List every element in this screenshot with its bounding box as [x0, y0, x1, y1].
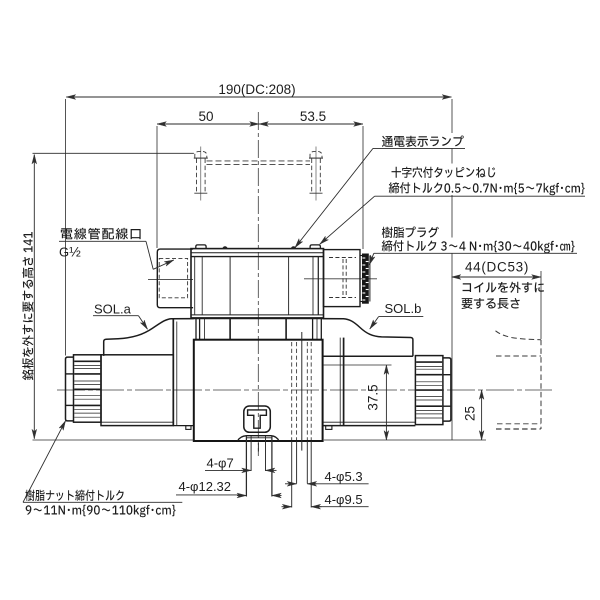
svg-text:4-φ7: 4-φ7: [207, 456, 234, 471]
svg-text:190(DC:208): 190(DC:208): [218, 82, 295, 97]
svg-text:G½: G½: [59, 244, 81, 260]
svg-text:37.5: 37.5: [366, 384, 381, 410]
svg-text:SOL.b: SOL.b: [385, 301, 422, 316]
svg-text:SOL.a: SOL.a: [94, 302, 132, 317]
svg-text:4-φ12.32: 4-φ12.32: [179, 479, 232, 494]
svg-text:4-φ9.5: 4-φ9.5: [325, 492, 363, 507]
svg-text:25: 25: [463, 406, 478, 421]
svg-text:53.5: 53.5: [300, 109, 326, 124]
svg-text:44(DC53): 44(DC53): [465, 260, 529, 275]
svg-text:50: 50: [198, 109, 213, 124]
svg-text:4-φ5.3: 4-φ5.3: [325, 469, 363, 484]
